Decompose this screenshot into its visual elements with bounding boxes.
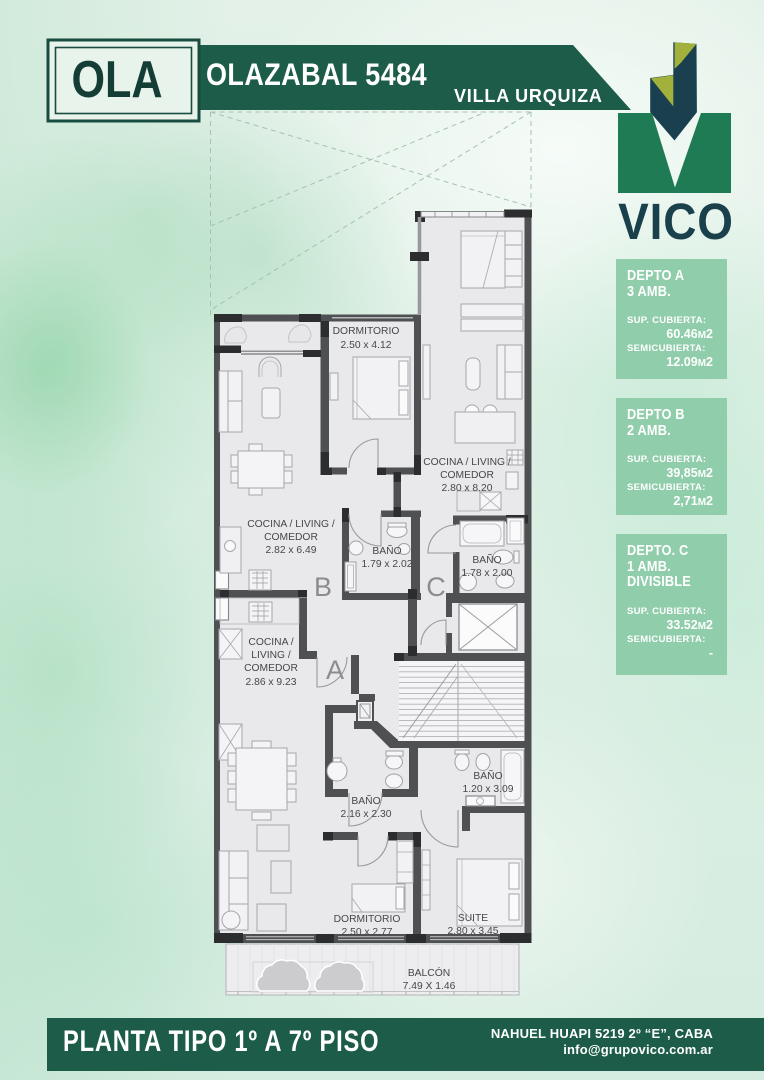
svg-text:2.80 x 3.45: 2.80 x 3.45 [448, 926, 499, 937]
svg-text:1.78 x 2.00: 1.78 x 2.00 [462, 568, 513, 579]
svg-text:1.20 x 3.09: 1.20 x 3.09 [463, 784, 514, 795]
svg-text:OLA: OLA [71, 51, 162, 109]
svg-text:2.80 x 8.20: 2.80 x 8.20 [442, 483, 493, 494]
svg-text:2.86 x 9.23: 2.86 x 9.23 [246, 677, 297, 688]
svg-text:B: B [314, 572, 332, 602]
svg-text:2.50 x 4.12: 2.50 x 4.12 [341, 340, 392, 351]
svg-text:BAÑO: BAÑO [351, 794, 380, 807]
svg-text:COCINA /: COCINA / [248, 637, 293, 648]
svg-text:LIVING /: LIVING / [251, 650, 291, 661]
svg-text:DORMITORIO: DORMITORIO [333, 326, 400, 337]
svg-text:BAÑO: BAÑO [472, 553, 501, 566]
svg-text:COCINA / LIVING /: COCINA / LIVING / [423, 457, 511, 468]
svg-text:VILLA URQUIZA: VILLA URQUIZA [454, 86, 603, 106]
svg-text:OLAZABAL 5484: OLAZABAL 5484 [206, 57, 427, 92]
svg-text:BAÑO: BAÑO [372, 544, 401, 557]
svg-text:2.82 x 6.49: 2.82 x 6.49 [266, 545, 317, 556]
svg-text:COMEDOR: COMEDOR [440, 470, 494, 481]
svg-text:VICO: VICO [618, 194, 734, 251]
svg-text:COMEDOR: COMEDOR [264, 532, 318, 543]
svg-text:1.79 x 2.02: 1.79 x 2.02 [362, 559, 413, 570]
svg-text:COCINA / LIVING /: COCINA / LIVING / [247, 519, 335, 530]
svg-text:A: A [326, 655, 344, 685]
svg-text:DORMITORIO: DORMITORIO [334, 914, 401, 925]
svg-text:2.16 x 2.30: 2.16 x 2.30 [341, 809, 392, 820]
svg-text:C: C [426, 572, 446, 602]
svg-text:2.50 x 2.77: 2.50 x 2.77 [342, 927, 393, 938]
svg-text:BAÑO: BAÑO [473, 769, 502, 782]
svg-text:7.49 X 1.46: 7.49 X 1.46 [403, 981, 456, 992]
svg-text:BALCÓN: BALCÓN [408, 966, 450, 979]
svg-text:COMEDOR: COMEDOR [244, 663, 298, 674]
svg-text:SUITE: SUITE [458, 913, 488, 924]
